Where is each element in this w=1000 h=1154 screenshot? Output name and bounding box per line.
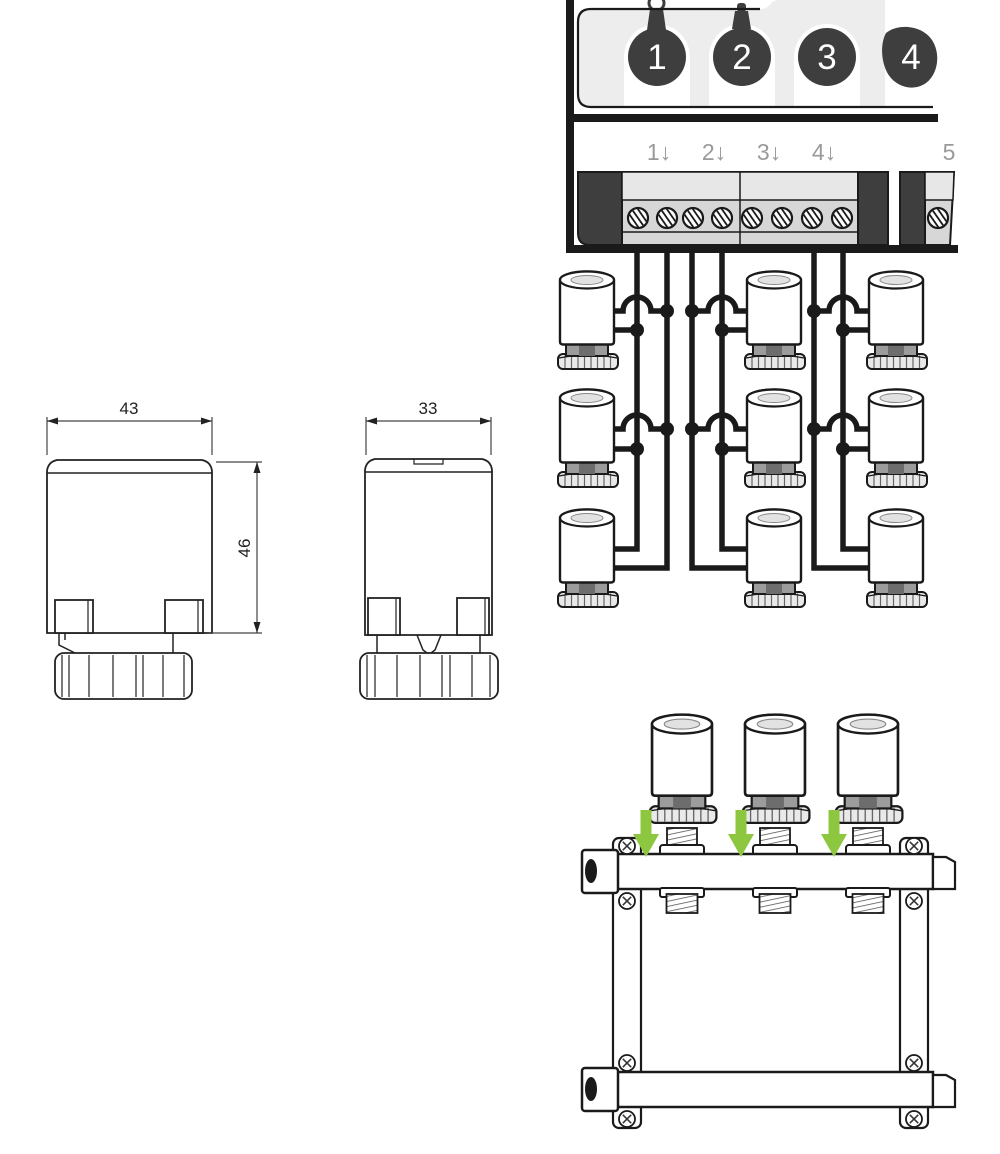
thermal-actuator [743,715,810,823]
thermal-actuator [745,390,805,488]
terminal-screw-icon [742,206,763,230]
terminal-screw-icon [712,206,733,230]
terminal-screw-icon [928,206,949,230]
housing-mid-bar [566,114,938,122]
actuator-side-view: 33 [360,399,498,699]
pipe-opening-icon [585,1077,597,1101]
bracket-screw-icon [906,893,922,909]
thermal-actuator [558,390,618,488]
actuator-front-view: 43 46 [47,399,262,699]
bracket-screw-icon [906,1055,922,1071]
pipe-opening-icon [585,859,597,883]
terminal-label-row: 1↓ 2↓ 3↓ 4↓ 5 [647,139,956,165]
channel-number: 1 [647,38,666,77]
dim-arrow-icon [201,418,212,425]
terminal-label: 5 [943,139,956,165]
wiring-diagram [558,253,927,607]
manifold-pipe-top [582,850,955,893]
housing-bottom-bar [566,245,958,253]
terminal-end-block [578,172,622,245]
thermal-actuator [867,390,927,488]
bracket-screw-icon [619,893,635,909]
thermal-actuator [836,715,903,823]
dimension-label-width: 43 [120,399,139,418]
terminal-screw-icon [772,206,793,230]
thermal-actuator [867,510,927,608]
dimension-label-height: 46 [235,539,254,558]
terminal-label: 2↓ [702,139,726,165]
bracket-screw-icon [619,838,635,854]
valve-nut [55,653,192,699]
dim-arrow-icon [254,622,261,633]
dim-arrow-icon [366,418,377,425]
thermal-actuator [558,510,618,608]
dim-arrow-icon [47,418,58,425]
thermal-actuator [745,272,805,370]
terminal-label: 4↓ [812,139,836,165]
channel-number: 2 [732,38,751,77]
controller-illustration: 1 2 3 4 1↓ 2↓ 3↓ 4↓ 5 [566,0,958,253]
terminal-label: 3↓ [757,139,781,165]
terminal-screw-icon [832,206,853,230]
valve-connections-top [660,828,890,857]
dim-arrow-icon [254,462,261,473]
wires [612,253,869,568]
channel-number: 4 [901,38,920,77]
bracket-screw-icon [619,1111,635,1127]
width-dimension [366,417,491,455]
valve-pin [417,635,441,653]
terminal-screw-icon [802,206,823,230]
thermal-actuator [650,715,717,823]
thermal-actuator [745,510,805,608]
valve-nut [360,653,498,699]
terminal-block-right [900,172,954,245]
terminal-screw-icon [628,206,649,230]
clip-hook [59,633,77,654]
bracket-screw-icon [619,1055,635,1071]
bracket-screw-icon [906,838,922,854]
terminal-block [566,172,958,253]
dimension-label-width: 33 [419,399,438,418]
terminal-screw-icon [657,206,678,230]
terminal-label: 1↓ [647,139,671,165]
manifold-pipe-bottom [582,1068,955,1111]
dim-arrow-icon [480,418,491,425]
width-dimension [47,417,212,455]
valve-ports-bottom [660,888,890,913]
manifold-installation [582,715,955,1128]
thermal-actuator [867,272,927,370]
product-diagram-page: 1 2 3 4 1↓ 2↓ 3↓ 4↓ 5 [0,0,1000,1154]
housing-left-edge [566,0,574,253]
terminal-end-block [858,172,888,245]
terminal-screw-icon [683,206,704,230]
product-diagram: 1 2 3 4 1↓ 2↓ 3↓ 4↓ 5 [0,0,1000,1154]
thermal-actuator [558,272,618,370]
bracket-screw-icon [906,1111,922,1127]
channel-number: 3 [817,38,836,77]
junction-dots [630,304,850,456]
